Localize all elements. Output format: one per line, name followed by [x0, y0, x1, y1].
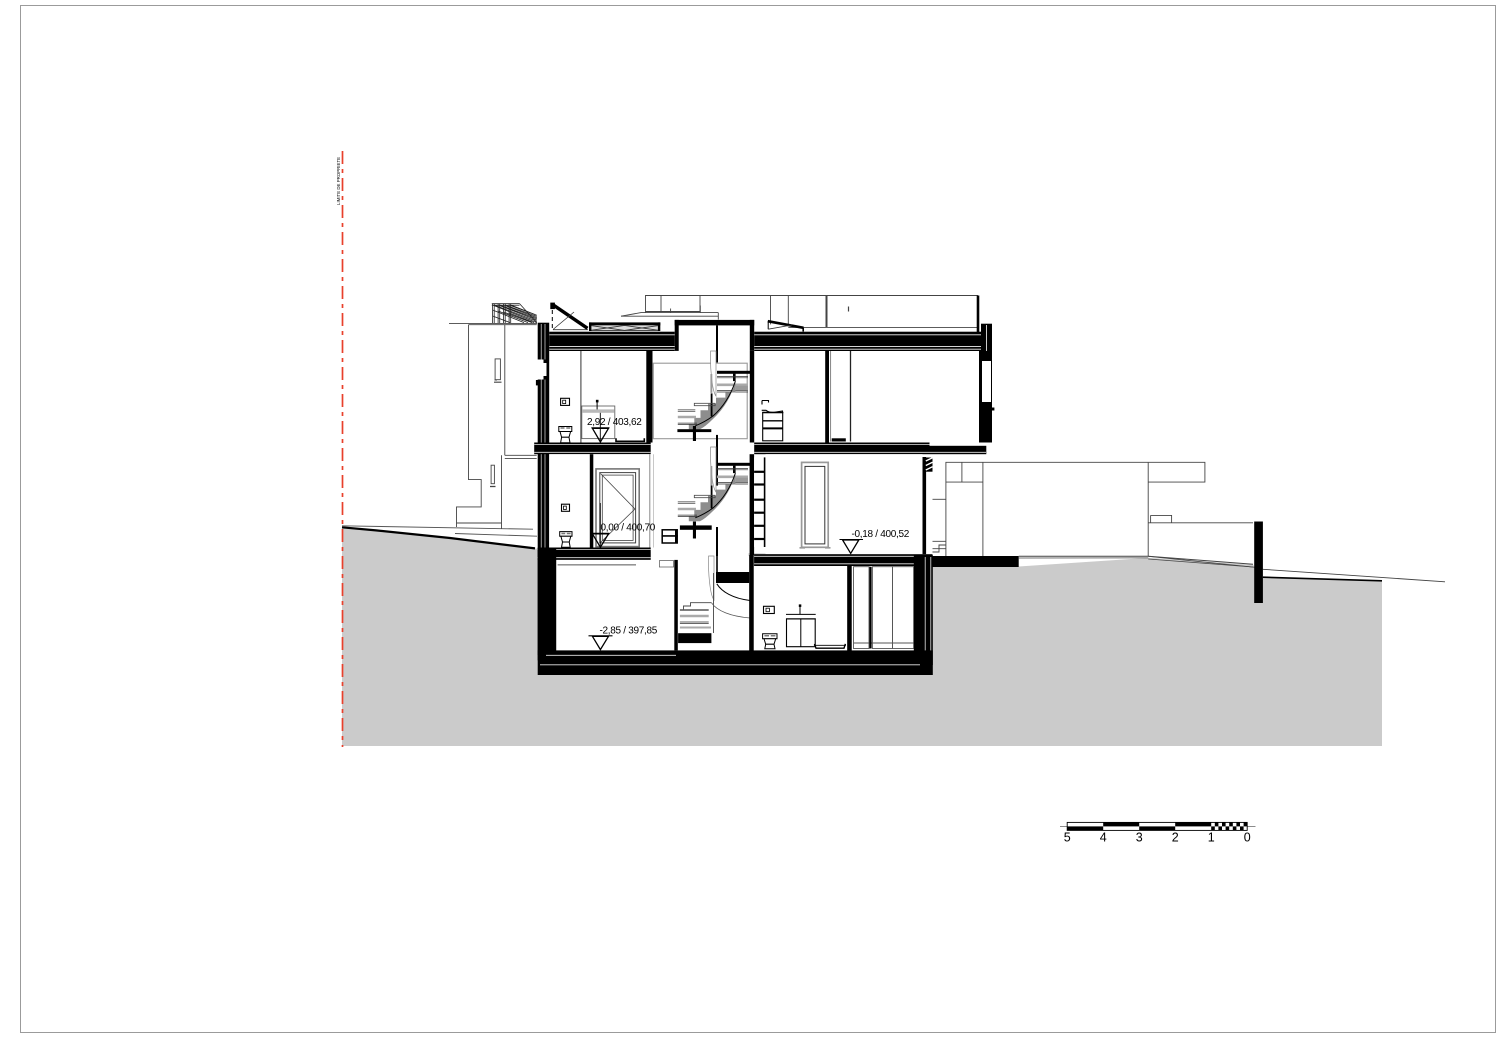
svg-text:LIMITE DE PROPRIETE: LIMITE DE PROPRIETE — [336, 157, 341, 205]
svg-text:4: 4 — [1100, 831, 1107, 845]
svg-text:3: 3 — [1136, 831, 1143, 845]
svg-text:-2,85 / 397,85: -2,85 / 397,85 — [600, 626, 658, 637]
svg-text:0: 0 — [1244, 831, 1251, 845]
svg-text:2: 2 — [1172, 831, 1179, 845]
svg-text:5: 5 — [1064, 831, 1071, 845]
svg-text:0,00 / 400,70: 0,00 / 400,70 — [601, 523, 656, 534]
svg-text:2,92 / 403,62: 2,92 / 403,62 — [587, 417, 642, 428]
svg-text:1: 1 — [1208, 831, 1215, 845]
svg-text:-0,18 / 400,52: -0,18 / 400,52 — [852, 529, 910, 540]
